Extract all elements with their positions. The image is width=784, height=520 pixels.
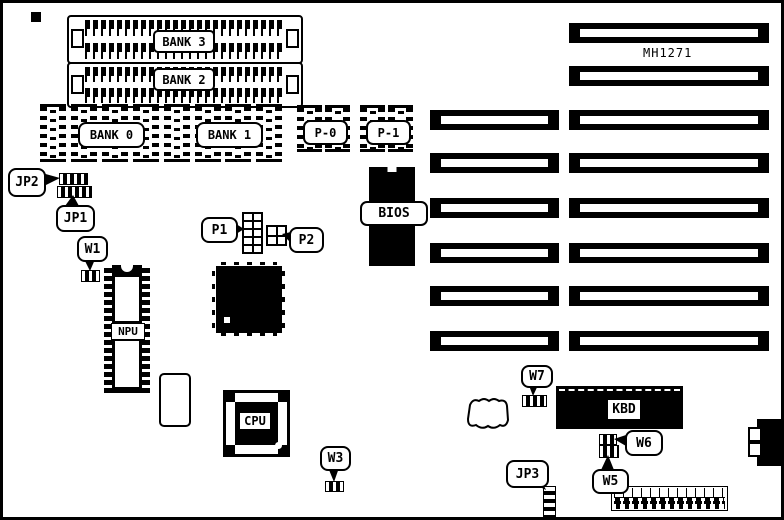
motherboard-diagram: BANK 3 BANK 2 BANK 0 BANK 1 P-0 P-1 JP2 … — [0, 0, 784, 520]
slot-opening — [441, 249, 548, 257]
slot-opening — [441, 292, 548, 300]
pin-cell — [244, 238, 252, 244]
pin-cell — [254, 246, 262, 252]
label-w3: W3 — [320, 446, 351, 471]
din-pin — [748, 427, 762, 442]
slot-opening — [441, 159, 548, 167]
pin-cell — [268, 237, 276, 245]
label-bank0: BANK 0 — [78, 122, 145, 148]
w3-jumper — [325, 481, 344, 492]
expansion-slot — [569, 198, 769, 218]
qfp-pins — [221, 333, 277, 336]
label-w1: W1 — [77, 236, 108, 262]
label-bank3: BANK 3 — [153, 30, 215, 53]
pin-cell — [254, 222, 262, 228]
qfp-pins — [212, 271, 215, 328]
w5-jumper — [599, 445, 619, 458]
slot-opening — [580, 159, 758, 167]
label-npu: NPU — [111, 323, 145, 340]
pin-cell — [244, 222, 252, 228]
memory-chip — [40, 104, 66, 162]
cpu-corner — [278, 393, 287, 402]
expansion-slot — [430, 110, 559, 130]
label-w7: W7 — [521, 365, 553, 388]
simm-latch — [71, 29, 84, 48]
expansion-slot — [569, 286, 769, 306]
w6-jumper — [599, 434, 617, 445]
slot-opening — [441, 337, 548, 345]
label-kbd: KBD — [608, 400, 640, 419]
npu-body — [115, 341, 139, 387]
slot-opening — [580, 116, 758, 124]
board-title: MH1271 — [643, 46, 692, 60]
label-bank1: BANK 1 — [196, 122, 263, 148]
w1-jumper — [81, 270, 100, 282]
simm-latch — [286, 75, 299, 94]
memory-chip — [164, 104, 190, 162]
expansion-slot — [430, 286, 559, 306]
cpu-corner — [226, 393, 235, 402]
label-w5: W5 — [592, 469, 629, 494]
npu-body — [115, 277, 139, 321]
p1-header — [242, 212, 263, 254]
speaker-outline — [463, 395, 513, 435]
expansion-slot — [430, 198, 559, 218]
pin-cell — [244, 246, 252, 252]
pin-cell — [268, 227, 276, 235]
cpu-corner — [226, 445, 235, 454]
expansion-slot — [569, 23, 769, 43]
simm-latch — [71, 75, 84, 94]
empty-socket — [159, 373, 191, 427]
jp1-jumper — [57, 186, 92, 198]
power-pins-row — [614, 488, 725, 498]
pin-cell — [278, 227, 286, 235]
pin-cell — [278, 237, 286, 245]
qfp-pins — [221, 262, 277, 265]
power-pins-row — [614, 501, 725, 509]
pin-cell — [244, 230, 252, 236]
expansion-slot — [569, 110, 769, 130]
jp2-jumper — [59, 173, 88, 185]
expansion-slot — [569, 243, 769, 263]
expansion-slot — [430, 331, 559, 351]
pin-cell — [254, 214, 262, 220]
label-w6: W6 — [625, 430, 663, 456]
slot-opening — [580, 29, 758, 37]
slot-opening — [441, 204, 548, 212]
label-jp3: JP3 — [506, 460, 549, 488]
slot-opening — [580, 249, 758, 257]
label-p2-header: P2 — [289, 227, 324, 253]
expansion-slot — [569, 153, 769, 173]
label-cpu: CPU — [239, 412, 271, 430]
pin-cell — [244, 214, 252, 220]
slot-opening — [580, 204, 758, 212]
expansion-slot — [569, 331, 769, 351]
label-p1: P-1 — [366, 120, 411, 145]
pin-cell — [254, 238, 262, 244]
slot-opening — [580, 292, 758, 300]
expansion-slot — [569, 66, 769, 86]
simm-latch — [286, 29, 299, 48]
kbd-dashed-line — [559, 389, 680, 391]
slot-opening — [580, 337, 758, 345]
label-bios: BIOS — [360, 201, 428, 226]
expansion-slot — [430, 153, 559, 173]
din-pin — [748, 442, 762, 457]
jp3-jumper — [543, 486, 556, 520]
slot-opening — [441, 116, 548, 124]
npu-notch — [121, 265, 133, 272]
chipset-qfp — [216, 266, 282, 333]
label-p1-header: P1 — [201, 217, 238, 243]
pin1-marker — [224, 317, 230, 323]
power-connector — [611, 486, 728, 511]
w7-jumper — [522, 395, 547, 407]
qfp-pins — [282, 271, 285, 328]
bios-notch — [388, 167, 397, 172]
solder-pad — [31, 12, 41, 22]
label-jp2: JP2 — [8, 168, 46, 197]
expansion-slot — [430, 243, 559, 263]
label-jp1: JP1 — [56, 205, 95, 232]
pin-cell — [254, 230, 262, 236]
label-p0: P-0 — [303, 120, 348, 145]
label-bank2: BANK 2 — [153, 68, 215, 91]
slot-opening — [580, 72, 758, 80]
cpu-pin1-marker — [275, 442, 282, 449]
p2-header — [266, 225, 287, 246]
